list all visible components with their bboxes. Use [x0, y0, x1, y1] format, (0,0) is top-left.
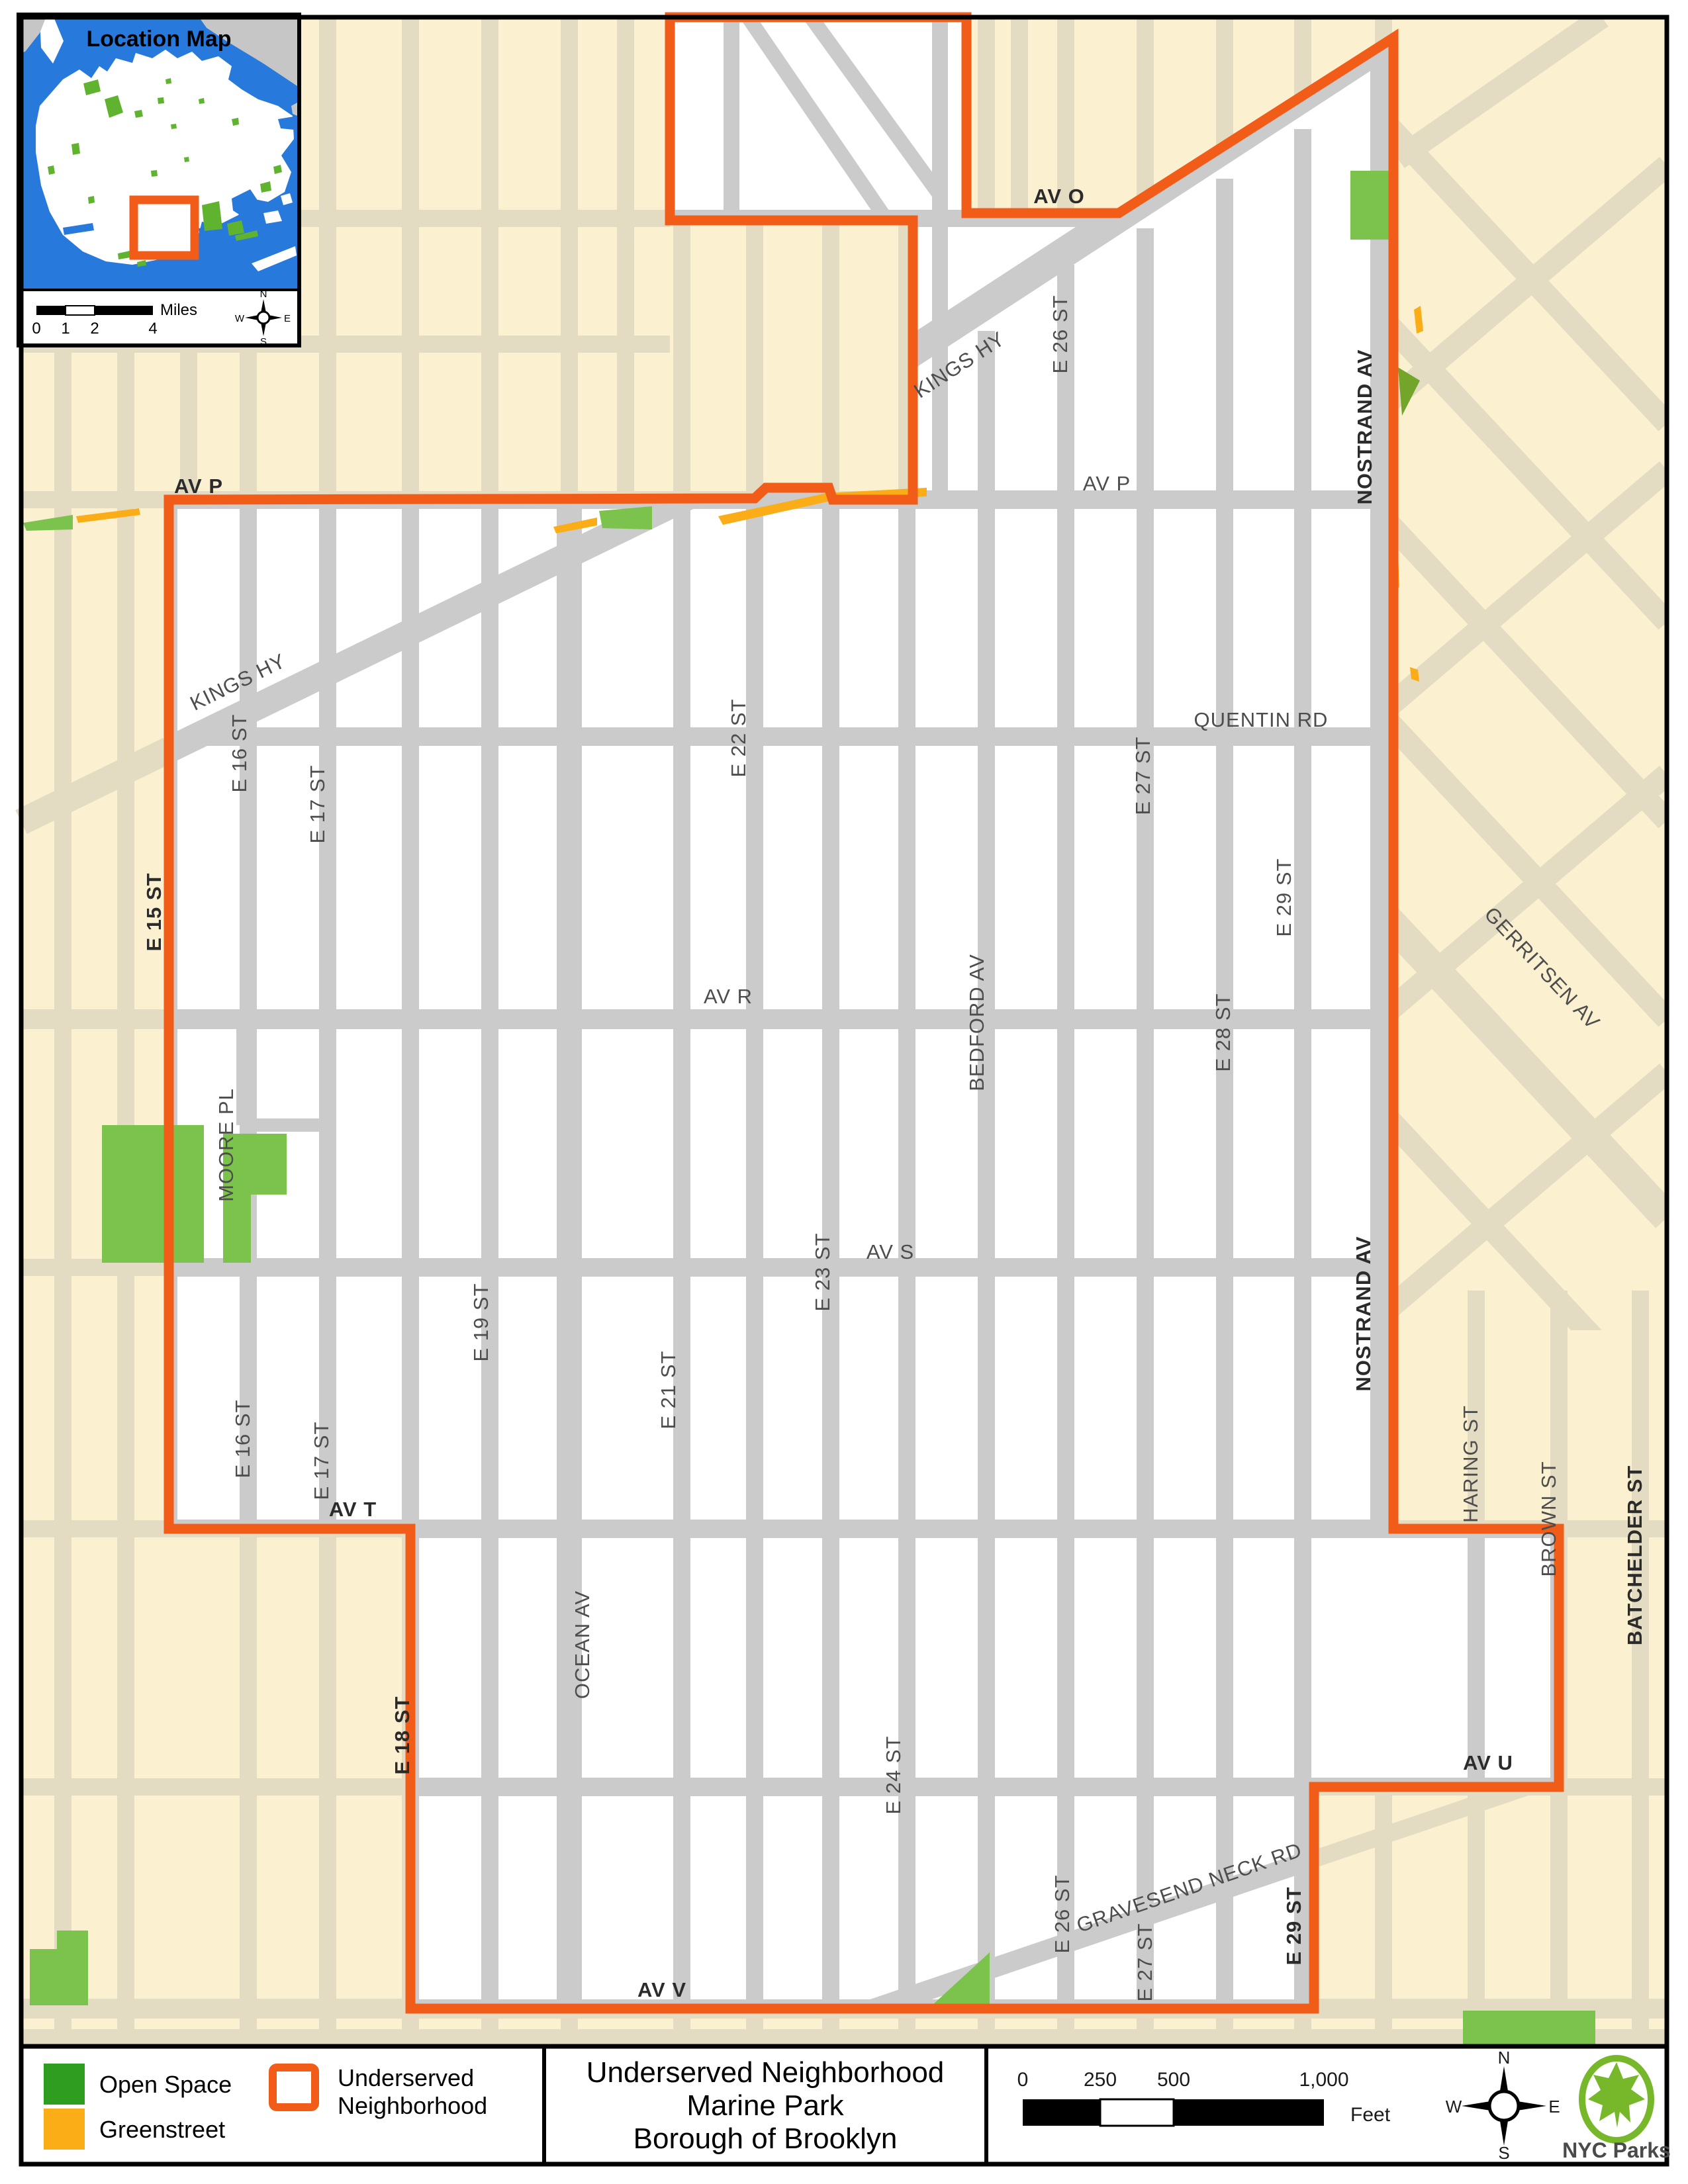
- underserved-label-line2: Neighborhood: [338, 2092, 487, 2119]
- street-label-e-16-st: E 16 ST: [228, 714, 251, 793]
- inset-park-shape: [134, 110, 143, 118]
- open-space-label: Open Space: [99, 2071, 232, 2098]
- compass-w: W: [1446, 2097, 1462, 2116]
- compass-s: S: [1498, 2143, 1509, 2163]
- nyc-parks-label: NYC Parks: [1562, 2138, 1671, 2162]
- map-title-line1: Underserved Neighborhood: [586, 2056, 945, 2089]
- street-label-e-17-st: E 17 ST: [306, 765, 329, 844]
- inset-park-shape: [158, 97, 164, 104]
- open-space-patch: [102, 1125, 204, 1263]
- inset-park-shape: [184, 157, 189, 162]
- street-label-e-26-st: E 26 ST: [1051, 1875, 1074, 1954]
- scalebar-seg2: [1100, 2099, 1174, 2126]
- greenstreet-swatch: [44, 2109, 85, 2150]
- street-label-av-t: AV T: [329, 1498, 377, 1521]
- map-title-line2: Marine Park: [686, 2089, 844, 2122]
- street-label-av-p: AV P: [174, 475, 223, 498]
- inset-park-shape: [71, 143, 80, 155]
- inset-scale-4: 4: [148, 320, 157, 338]
- street-label-av-v: AV V: [637, 1978, 686, 2001]
- open-space-patch: [1463, 2011, 1595, 2045]
- street-label-av-r: AV R: [704, 985, 753, 1008]
- street-label-e-21-st: E 21 ST: [657, 1351, 680, 1430]
- street-label-brown-st: BROWN ST: [1537, 1461, 1560, 1576]
- street-label-e-18-st: E 18 ST: [391, 1696, 414, 1775]
- inset-park-shape: [48, 165, 55, 175]
- compass-e: E: [1548, 2097, 1560, 2116]
- scalebar-seg3: [1174, 2099, 1324, 2126]
- inset-compass-e: E: [284, 313, 291, 324]
- greenstreet-label: Greenstreet: [99, 2116, 225, 2143]
- inset-park-shape: [151, 170, 158, 177]
- scalebar-250: 250: [1084, 2069, 1117, 2091]
- compass-hub: [1489, 2091, 1519, 2120]
- street-label-e-17-st: E 17 ST: [310, 1422, 333, 1500]
- street-label-nostrand-av: NOSTRAND AV: [1352, 1236, 1375, 1392]
- open-space-swatch: [44, 2064, 85, 2105]
- street-label-e-15-st: E 15 ST: [142, 873, 165, 952]
- inset-scale-2: 2: [90, 320, 99, 338]
- scalebar-0: 0: [1017, 2069, 1029, 2091]
- street-label-e-29-st: E 29 ST: [1272, 858, 1295, 937]
- inset-highlight-rectangle: [134, 200, 195, 255]
- scalebar-1000: 1,000: [1299, 2069, 1348, 2091]
- street-label-e-28-st: E 28 ST: [1211, 993, 1235, 1072]
- inset-scale-1: 1: [61, 320, 70, 338]
- inset-scale-seg2: [66, 306, 95, 315]
- scalebar-seg1: [1023, 2099, 1100, 2126]
- inset-compass-w: W: [235, 313, 245, 324]
- street-label-e-27-st: E 27 ST: [1131, 737, 1154, 815]
- inset-scale-unit: Miles: [160, 301, 197, 319]
- legend-bar: Open Space Greenstreet Underserved Neigh…: [21, 2046, 1671, 2164]
- underserved-boundary-swatch: [273, 2068, 315, 2107]
- inset-scale-seg1: [36, 306, 66, 315]
- inset-map: [21, 17, 297, 289]
- open-space-patch: [1350, 171, 1390, 240]
- street-label-e-23-st: E 23 ST: [811, 1233, 834, 1312]
- scalebar-unit: Feet: [1350, 2104, 1391, 2126]
- street-label-av-o: AV O: [1033, 185, 1085, 208]
- street-label-e-29-st: E 29 ST: [1282, 1887, 1305, 1966]
- street-label-e-19-st: E 19 ST: [469, 1283, 492, 1362]
- street-label-e-22-st: E 22 ST: [727, 699, 750, 778]
- compass-n: N: [1498, 2048, 1511, 2068]
- inset-scale-0: 0: [32, 320, 40, 338]
- inset-scale-seg3: [95, 306, 153, 315]
- street-label-e-26-st: E 26 ST: [1049, 295, 1072, 374]
- street-label-bedford-av: BEDFORD AV: [965, 954, 988, 1091]
- underserved-label-line1: Underserved: [338, 2064, 474, 2091]
- inset-park-shape: [232, 118, 239, 126]
- street-label-moore-pl: MOORE PL: [214, 1088, 238, 1202]
- street-label-e-24-st: E 24 ST: [882, 1736, 905, 1815]
- street-label-av-s: AV S: [867, 1240, 914, 1263]
- inset-compass-hub: [258, 312, 269, 324]
- map-title-line3: Borough of Brooklyn: [633, 2122, 898, 2155]
- inset-title: Location Map: [86, 26, 231, 52]
- street-label-nostrand-av: NOSTRAND AV: [1353, 349, 1376, 505]
- inset-park-shape: [202, 201, 222, 231]
- street-label-haring-st: HARING ST: [1459, 1405, 1482, 1523]
- inset-compass-s: S: [260, 336, 267, 347]
- street-label-e-16-st: E 16 ST: [231, 1400, 254, 1479]
- location-map-inset: Location Map 0 1 2 4 Miles N S W E: [19, 15, 299, 347]
- map-canvas: AV OAV PAV PKINGS HYKINGS HYE 26 STNOSTR…: [0, 0, 1688, 2184]
- street-label-av-u: AV U: [1463, 1751, 1513, 1774]
- scalebar-500: 500: [1157, 2069, 1190, 2091]
- inset-park-shape: [171, 124, 177, 129]
- street-label-batchelder-st: BATCHELDER ST: [1623, 1465, 1646, 1645]
- inset-compass-n: N: [260, 289, 267, 300]
- street-label-av-p: AV P: [1083, 472, 1131, 495]
- street-label-quentin-rd: QUENTIN RD: [1194, 708, 1329, 731]
- inset-park-shape: [88, 196, 95, 204]
- street-label-e-27-st: E 27 ST: [1133, 1923, 1156, 2002]
- street-label-ocean-av: OCEAN AV: [571, 1590, 594, 1699]
